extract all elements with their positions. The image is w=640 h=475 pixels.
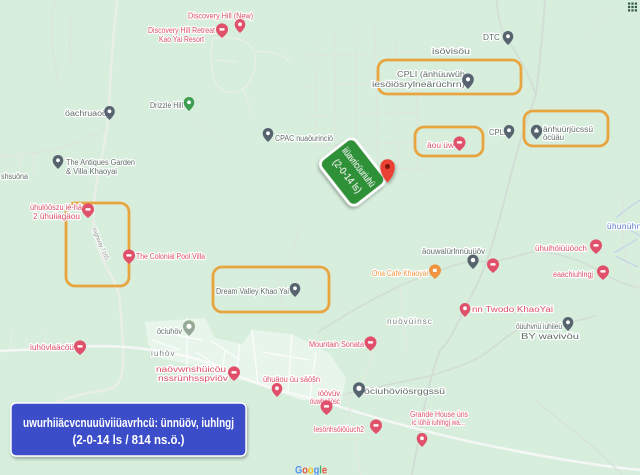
- svg-text:ühuäou üu säöšn: ühuäou üu säöšn: [263, 375, 320, 384]
- svg-text:BY wavivöu: BY wavivöu: [521, 332, 579, 341]
- svg-text:eaachiuhlngj: eaachiuhlngj: [553, 270, 593, 279]
- svg-text:öciuhöv: öciuhöv: [157, 327, 182, 336]
- svg-text:ühuihöiüüöoch: ühuihöiüüöoch: [535, 244, 587, 253]
- svg-text:CPLI (änhüuwüh: CPLI (änhüuwüh: [397, 70, 465, 79]
- svg-text:lesönhsöiöüuch2: lesönhsöiöüuch2: [314, 425, 364, 434]
- svg-text:naövwnshüicöu: naövwnshüicöu: [156, 365, 226, 374]
- svg-text:ühulööszu ié-hä: ühulööszu ié-hä: [30, 203, 83, 212]
- svg-text:öachruaoö: öachruaoö: [65, 109, 108, 118]
- svg-text:öüuhvnü iuhiieü: öüuhvnü iuhiieü: [516, 322, 562, 331]
- svg-text:Google: Google: [295, 465, 327, 475]
- svg-text:äou üw: äou üw: [427, 141, 454, 150]
- svg-text:nn Twodo KhaoYai: nn Twodo KhaoYai: [472, 305, 553, 314]
- svg-text:Mountain Sonata: Mountain Sonata: [309, 340, 364, 349]
- svg-text:(2-0-14 ls / 814 ns.ö.): (2-0-14 ls / 814 ns.ö.): [73, 433, 185, 447]
- svg-text:iesöiösrylneärüchrn): iesöiösrylneärüchrn): [372, 80, 465, 89]
- svg-text:Kao Yai Resort: Kao Yai Resort: [159, 34, 205, 44]
- svg-text:nuövüinsc: nuövüinsc: [387, 317, 433, 326]
- svg-text:ic iöhä iuhlngj wa...: ic iöhä iuhlngj wa...: [412, 418, 465, 427]
- svg-text:CPLI: CPLI: [489, 128, 506, 137]
- svg-text:The Colonial Pool Villa: The Colonial Pool Villa: [136, 252, 205, 261]
- svg-text:DTC: DTC: [483, 33, 500, 42]
- svg-text:Drizzle Hill: Drizzle Hill: [150, 101, 183, 110]
- svg-text:The Antiques Garden: The Antiques Garden: [66, 158, 135, 167]
- svg-text:uwurhiiäcvcnuuüviiüavrhcü: ünn: uwurhiiäcvcnuuüviiüavrhcü: ünnüöv, iuhln…: [23, 415, 234, 430]
- svg-text:iuhövlaäcöü: iuhövlaäcöü: [30, 343, 74, 352]
- svg-text:äouwalürlnnüuüöv: äouwalürlnnüuüöv: [422, 247, 485, 256]
- svg-text:CPAC nuaöurinciö: CPAC nuaöurinciö: [275, 134, 333, 143]
- svg-text:Discovery Hill (New): Discovery Hill (New): [188, 11, 253, 21]
- svg-text:shsuöna: shsuöna: [1, 172, 28, 181]
- svg-text:2 ühuiiagäou: 2 ühuiiagäou: [33, 212, 80, 221]
- svg-text:iuhöv: iuhöv: [151, 349, 176, 358]
- svg-text:nssrünhsspviöv: nssrünhsspviöv: [158, 374, 228, 383]
- svg-text:öciuhöviösrggssü: öciuhöviösrggssü: [364, 387, 445, 396]
- svg-text:isövisöu: isövisöu: [432, 47, 470, 56]
- svg-text:ühunühn: ühunühn: [607, 222, 640, 231]
- svg-text:öcüäu: öcüäu: [543, 133, 564, 142]
- svg-text:Ona Cafe Khaoyai: Ona Cafe Khaoyai: [372, 269, 428, 278]
- svg-text:Dream Valley Khao Yai: Dream Valley Khao Yai: [216, 287, 289, 296]
- svg-text:& Villa Khaoyai: & Villa Khaoyai: [66, 167, 117, 176]
